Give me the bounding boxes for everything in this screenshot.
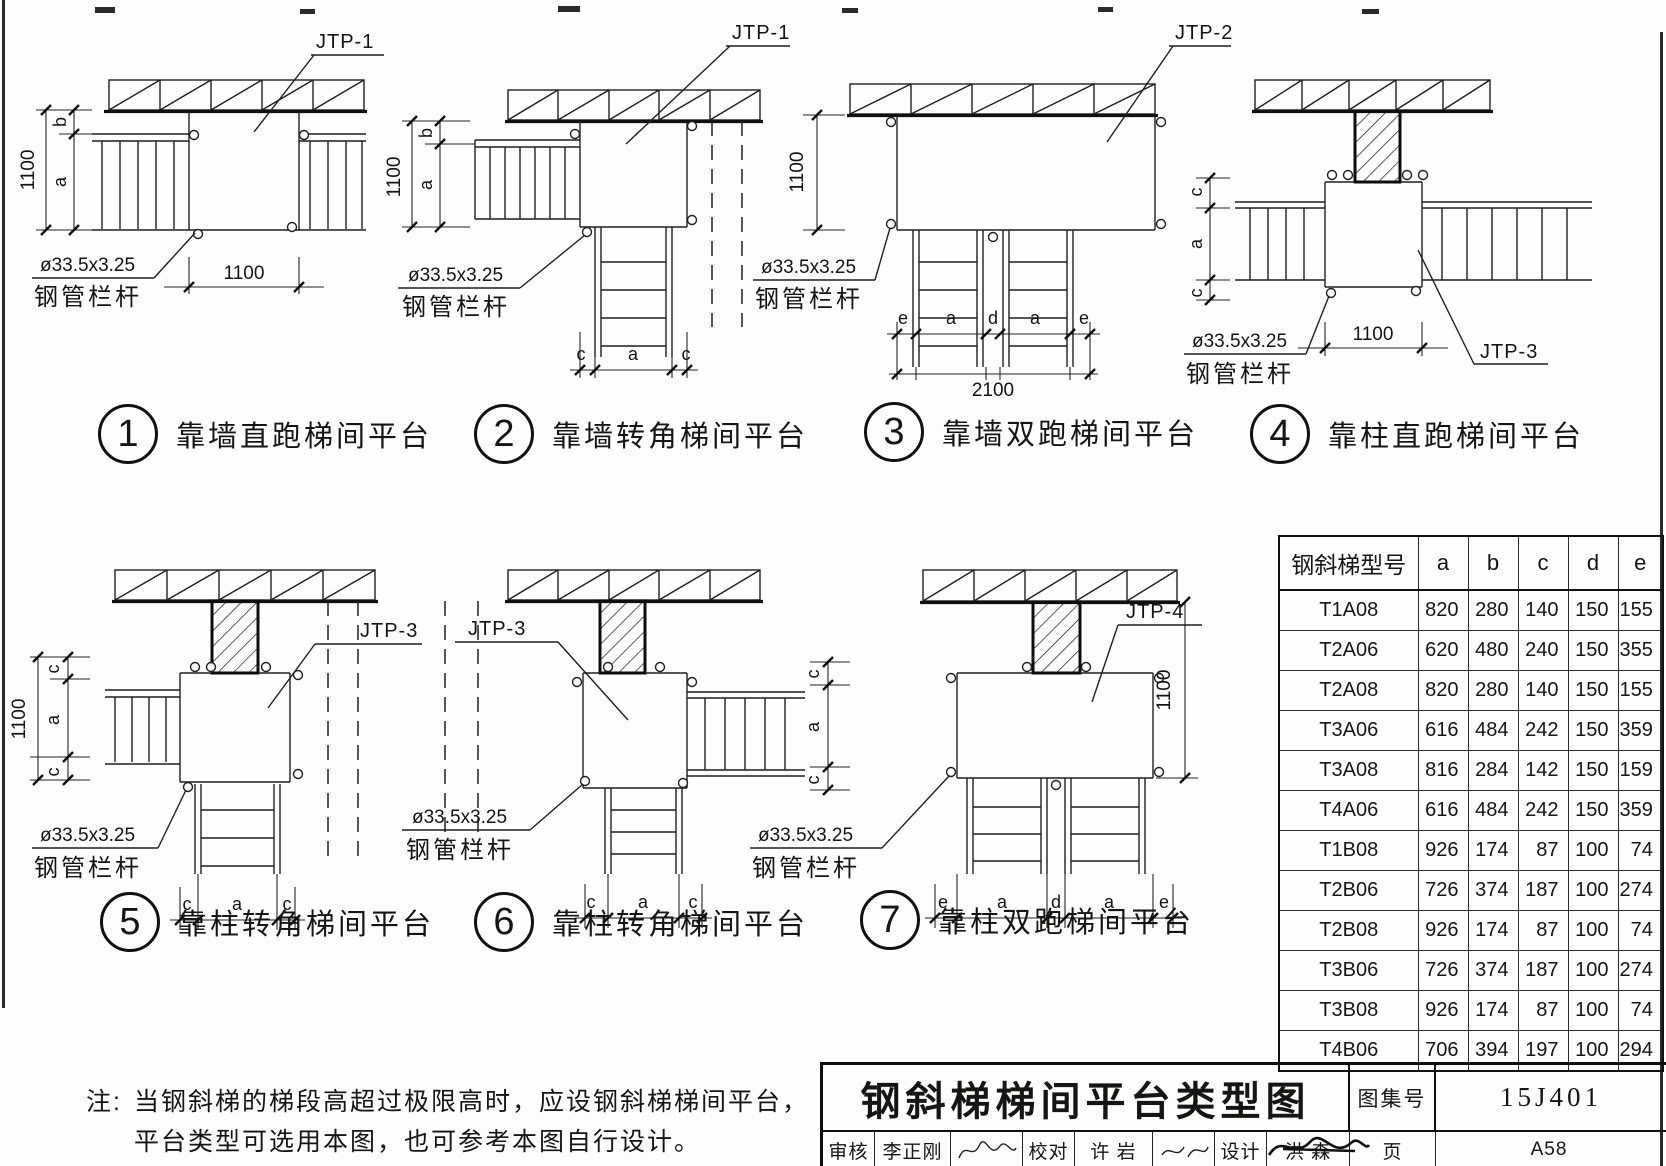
cell-type: T2B08 bbox=[1279, 911, 1418, 951]
cell-b: 484 bbox=[1468, 711, 1518, 751]
cell-d: 100 bbox=[1568, 831, 1618, 871]
cell-a: 820 bbox=[1418, 671, 1468, 711]
figure-1-caption: 1 靠墙直跑梯间平台 bbox=[98, 404, 432, 464]
table-row: T2A06 620 480 240 150 355 bbox=[1279, 631, 1663, 671]
figure-7-caption: 7 靠柱双跑梯间平台 bbox=[860, 890, 1194, 950]
cell-e: 74 bbox=[1618, 831, 1663, 871]
figure-caption-text: 靠墙转角梯间平台 bbox=[552, 413, 808, 455]
cell-e: 155 bbox=[1618, 590, 1663, 631]
cell-c: 87 bbox=[1518, 991, 1568, 1031]
dim-c: c bbox=[43, 665, 63, 674]
table-row: T3A06 616 484 242 150 359 bbox=[1279, 711, 1663, 751]
figure-number-badge: 4 bbox=[1250, 404, 1310, 464]
figure-caption-text: 靠柱转角梯间平台 bbox=[552, 901, 808, 943]
figure-6-caption: 6 靠柱转角梯间平台 bbox=[474, 892, 808, 952]
label-pipe-name: 钢管栏杆 bbox=[34, 284, 142, 311]
col-header-type: 钢斜梯型号 bbox=[1279, 536, 1418, 590]
label-pipe-spec: ø33.5x3.25 bbox=[1192, 331, 1287, 352]
cell-a: 820 bbox=[1418, 590, 1468, 631]
cell-c: 240 bbox=[1518, 631, 1568, 671]
table-row: T3A08 816 284 142 150 159 bbox=[1279, 751, 1663, 791]
cell-type: T4A06 bbox=[1279, 791, 1418, 831]
table-row: T1B08 926 174 87 100 74 bbox=[1279, 831, 1663, 871]
figure-caption-text: 靠墙双跑梯间平台 bbox=[942, 411, 1198, 453]
title-block-bottom-row: 审核 李正刚 校对 许 岩 设计 洪 森 页 A58 bbox=[823, 1130, 1666, 1166]
figure-number-badge: 7 bbox=[860, 890, 920, 950]
signature-scribble bbox=[1158, 1137, 1210, 1163]
drawing-sheet: 1100 b a 1100 JTP-1 ø33.5x3.25 钢管栏杆 bbox=[0, 0, 1666, 1166]
cell-a: 926 bbox=[1418, 991, 1468, 1031]
cell-b: 374 bbox=[1468, 951, 1518, 991]
note-line-2: 平台类型可选用本图，也可参考本图自行设计。 bbox=[134, 1122, 701, 1158]
cell-a: 726 bbox=[1418, 951, 1468, 991]
cell-type: T3B06 bbox=[1279, 951, 1418, 991]
slab bbox=[505, 570, 763, 602]
cell-d: 100 bbox=[1568, 951, 1618, 991]
label-pipe-spec: ø33.5x3.25 bbox=[761, 257, 856, 278]
ladder-type-table: 钢斜梯型号 a b c d e T1A08 820 280 140 150 15… bbox=[1278, 535, 1664, 1072]
figure-5-caption: 5 靠柱转角梯间平台 bbox=[100, 892, 434, 952]
atlas-number-value: 15J401 bbox=[1436, 1065, 1666, 1130]
dim-1100-v: 1100 bbox=[384, 157, 405, 198]
cell-d: 150 bbox=[1568, 590, 1618, 631]
proofreader-signature bbox=[1153, 1132, 1215, 1166]
figure-number-badge: 5 bbox=[100, 892, 160, 952]
dimensions bbox=[810, 597, 1198, 928]
dim-c: c bbox=[1186, 188, 1206, 197]
cell-c: 242 bbox=[1518, 791, 1568, 831]
label-pipe-spec: ø33.5x3.25 bbox=[40, 255, 135, 276]
cell-type: T1B08 bbox=[1279, 831, 1418, 871]
reviewer-name: 李正刚 bbox=[875, 1132, 951, 1166]
platform-and-ladders bbox=[1235, 171, 1592, 298]
cell-c: 242 bbox=[1518, 711, 1568, 751]
design-label: 设计 bbox=[1215, 1132, 1267, 1166]
figure-number-badge: 6 bbox=[474, 892, 534, 952]
scan-artifact bbox=[842, 8, 858, 13]
dimensions bbox=[30, 652, 305, 930]
label-pipe-name: 钢管栏杆 bbox=[34, 855, 142, 882]
cell-e: 159 bbox=[1618, 751, 1663, 791]
cell-c: 142 bbox=[1518, 751, 1568, 791]
slab bbox=[505, 90, 763, 122]
scan-artifact bbox=[300, 9, 315, 14]
label-jtp3: JTP-3 bbox=[1480, 341, 1538, 363]
cell-e: 74 bbox=[1618, 991, 1663, 1031]
dim-c: c bbox=[1186, 289, 1206, 298]
col-header-a: a bbox=[1418, 536, 1468, 590]
platform-and-ladders bbox=[887, 115, 1166, 367]
cell-a: 926 bbox=[1418, 831, 1468, 871]
slab bbox=[847, 84, 1158, 116]
dim-a: a bbox=[1186, 238, 1206, 249]
dim-e: e bbox=[898, 308, 908, 328]
cell-c: 87 bbox=[1518, 831, 1568, 871]
dim-e: e bbox=[1079, 308, 1089, 328]
dim-c: c bbox=[803, 776, 823, 785]
cell-c: 187 bbox=[1518, 951, 1568, 991]
dim-2100: 2100 bbox=[972, 380, 1014, 401]
dim-1100-v: 1100 bbox=[787, 152, 808, 193]
platform-and-stair bbox=[475, 121, 742, 357]
platform-and-ladders bbox=[947, 663, 1164, 875]
dimensions bbox=[803, 110, 1100, 380]
cell-type: T2A06 bbox=[1279, 631, 1418, 671]
reviewer-signature bbox=[951, 1132, 1023, 1166]
col-header-b: b bbox=[1468, 536, 1518, 590]
label-pipe-spec: ø33.5x3.25 bbox=[40, 825, 135, 846]
dim-b: b bbox=[416, 128, 436, 138]
cell-type: T2A08 bbox=[1279, 671, 1418, 711]
cell-b: 374 bbox=[1468, 871, 1518, 911]
figure-7-drawing: c a c 1100 e a d a e JTP-4 ø33.5x3.25 钢管… bbox=[740, 522, 1212, 942]
label-pipe-name: 钢管栏杆 bbox=[402, 294, 510, 321]
cell-c: 140 bbox=[1518, 590, 1568, 631]
title-block: 钢斜梯梯间平台类型图 图集号 15J401 审核 李正刚 校对 许 岩 设计 洪… bbox=[820, 1062, 1666, 1166]
dim-a: a bbox=[416, 179, 436, 190]
page-number: A58 bbox=[1436, 1132, 1662, 1166]
signature-scribble bbox=[956, 1136, 1018, 1164]
figure-4-caption: 4 靠柱直跑梯间平台 bbox=[1250, 404, 1584, 464]
scan-artifact bbox=[95, 7, 115, 13]
figure-3-caption: 3 靠墙双跑梯间平台 bbox=[864, 402, 1198, 462]
cell-b: 174 bbox=[1468, 991, 1518, 1031]
slab bbox=[920, 570, 1180, 603]
label-pipe-name: 钢管栏杆 bbox=[752, 855, 860, 882]
cell-type: T3B08 bbox=[1279, 991, 1418, 1031]
cell-type: T3A06 bbox=[1279, 711, 1418, 751]
table-row: T4A06 616 484 242 150 359 bbox=[1279, 791, 1663, 831]
slab bbox=[112, 570, 378, 602]
cell-a: 620 bbox=[1418, 631, 1468, 671]
cell-e: 359 bbox=[1618, 711, 1663, 751]
cell-b: 484 bbox=[1468, 791, 1518, 831]
figure-4-drawing: c a c 1100 JTP-3 ø33.5x3.25 钢管栏杆 bbox=[1180, 22, 1666, 414]
cell-c: 140 bbox=[1518, 671, 1568, 711]
table-row: T2A08 820 280 140 150 155 bbox=[1279, 671, 1663, 711]
figure-caption-text: 靠墙直跑梯间平台 bbox=[176, 413, 432, 455]
column bbox=[1033, 602, 1080, 673]
dim-1100-h: 1100 bbox=[1353, 324, 1394, 345]
scan-artifact bbox=[1362, 9, 1379, 14]
sheet-title: 钢斜梯梯间平台类型图 bbox=[823, 1065, 1350, 1130]
table-row: T2B08 926 174 87 100 74 bbox=[1279, 911, 1663, 951]
table-row: T2B06 726 374 187 100 274 bbox=[1279, 871, 1663, 911]
figure-caption-text: 靠柱转角梯间平台 bbox=[178, 901, 434, 943]
cell-b: 174 bbox=[1468, 831, 1518, 871]
dim-a: a bbox=[1030, 308, 1041, 328]
scan-artifact bbox=[558, 6, 580, 12]
figure-caption-text: 靠柱直跑梯间平台 bbox=[1328, 413, 1584, 455]
cell-c: 187 bbox=[1518, 871, 1568, 911]
dim-d: d bbox=[988, 308, 998, 328]
label-pipe-spec: ø33.5x3.25 bbox=[412, 807, 507, 828]
table-row: T3B06 726 374 187 100 274 bbox=[1279, 951, 1663, 991]
dim-c: c bbox=[577, 344, 586, 364]
dim-1100-v: 1100 bbox=[9, 699, 30, 740]
figure-3-drawing: 1100 e a d a e 2100 JTP-2 ø33.5x3.25 钢管栏… bbox=[745, 22, 1233, 404]
designer-signature-scribble bbox=[1263, 1131, 1373, 1165]
cell-a: 926 bbox=[1418, 911, 1468, 951]
cell-e: 155 bbox=[1618, 671, 1663, 711]
figure-number-badge: 3 bbox=[864, 402, 924, 462]
cell-a: 616 bbox=[1418, 711, 1468, 751]
cell-d: 150 bbox=[1568, 751, 1618, 791]
table-row: T1A08 820 280 140 150 155 bbox=[1279, 590, 1663, 631]
col-header-d: d bbox=[1568, 536, 1618, 590]
cell-b: 280 bbox=[1468, 671, 1518, 711]
slab bbox=[1252, 80, 1493, 112]
dim-1100-h: 1100 bbox=[224, 263, 265, 284]
label-pipe-name: 钢管栏杆 bbox=[755, 286, 863, 313]
cell-e: 274 bbox=[1618, 871, 1663, 911]
cell-b: 174 bbox=[1468, 911, 1518, 951]
slab bbox=[104, 80, 367, 112]
cell-d: 100 bbox=[1568, 871, 1618, 911]
figure-1-drawing: 1100 b a 1100 JTP-1 ø33.5x3.25 钢管栏杆 bbox=[14, 22, 386, 322]
cell-b: 280 bbox=[1468, 590, 1518, 631]
label-pipe-name: 钢管栏杆 bbox=[406, 837, 514, 864]
cell-a: 616 bbox=[1418, 791, 1468, 831]
table-header-row: 钢斜梯型号 a b c d e bbox=[1279, 536, 1663, 590]
dim-a: a bbox=[628, 344, 639, 364]
cell-e: 274 bbox=[1618, 951, 1663, 991]
cell-c: 87 bbox=[1518, 911, 1568, 951]
cell-d: 150 bbox=[1568, 791, 1618, 831]
label-jtp1: JTP-1 bbox=[316, 31, 374, 53]
cell-d: 150 bbox=[1568, 711, 1618, 751]
cell-type: T3A08 bbox=[1279, 751, 1418, 791]
dim-a: a bbox=[50, 176, 70, 187]
cell-a: 816 bbox=[1418, 751, 1468, 791]
cell-d: 100 bbox=[1568, 911, 1618, 951]
table-row: T3B08 926 174 87 100 74 bbox=[1279, 991, 1663, 1031]
figure-caption-text: 靠柱双跑梯间平台 bbox=[938, 899, 1194, 941]
dim-a: a bbox=[946, 308, 957, 328]
dimensions bbox=[1196, 173, 1448, 356]
review-label: 审核 bbox=[823, 1132, 875, 1166]
dim-a: a bbox=[43, 714, 63, 725]
dim-1100-v: 1100 bbox=[1154, 670, 1175, 711]
dim-c: c bbox=[43, 768, 63, 777]
cell-a: 726 bbox=[1418, 871, 1468, 911]
label-jtp3: JTP-3 bbox=[468, 618, 526, 640]
cell-b: 480 bbox=[1468, 631, 1518, 671]
col-header-e: e bbox=[1618, 536, 1663, 590]
column bbox=[212, 601, 258, 673]
cell-d: 150 bbox=[1568, 671, 1618, 711]
scan-artifact bbox=[1098, 7, 1113, 12]
label-pipe-spec: ø33.5x3.25 bbox=[408, 265, 503, 286]
figure-2-caption: 2 靠墙转角梯间平台 bbox=[474, 404, 808, 464]
figure-2-drawing: 1100 b a c a c JTP-1 ø33.5x3.25 钢管栏杆 bbox=[380, 22, 792, 392]
cell-e: 359 bbox=[1618, 791, 1663, 831]
dim-b: b bbox=[50, 117, 70, 127]
label-pipe-spec: ø33.5x3.25 bbox=[758, 825, 853, 846]
platform-and-rails bbox=[92, 111, 366, 239]
note-label: 注: bbox=[86, 1082, 122, 1118]
dim-a: a bbox=[803, 721, 823, 732]
atlas-number-label: 图集号 bbox=[1350, 1065, 1436, 1130]
figure-number-badge: 1 bbox=[98, 404, 158, 464]
proof-label: 校对 bbox=[1023, 1132, 1075, 1166]
label-jtp4: JTP-4 bbox=[1126, 601, 1184, 623]
dim-1100-v: 1100 bbox=[18, 150, 39, 191]
note-line-1: 当钢斜梯的梯段高超过极限高时，应设钢斜梯梯间平台， bbox=[134, 1082, 809, 1118]
col-header-c: c bbox=[1518, 536, 1568, 590]
cell-type: T1A08 bbox=[1279, 590, 1418, 631]
dim-c: c bbox=[682, 344, 691, 364]
cell-e: 355 bbox=[1618, 631, 1663, 671]
cell-d: 100 bbox=[1568, 991, 1618, 1031]
cell-d: 150 bbox=[1568, 631, 1618, 671]
cell-b: 284 bbox=[1468, 751, 1518, 791]
label-pipe-name: 钢管栏杆 bbox=[1186, 361, 1294, 388]
cell-e: 74 bbox=[1618, 911, 1663, 951]
page-left-edge bbox=[2, 0, 5, 1008]
column bbox=[1355, 111, 1400, 182]
cell-type: T2B06 bbox=[1279, 871, 1418, 911]
proofreader-name: 许 岩 bbox=[1075, 1132, 1153, 1166]
figure-number-badge: 2 bbox=[474, 404, 534, 464]
dim-c: c bbox=[803, 670, 823, 679]
